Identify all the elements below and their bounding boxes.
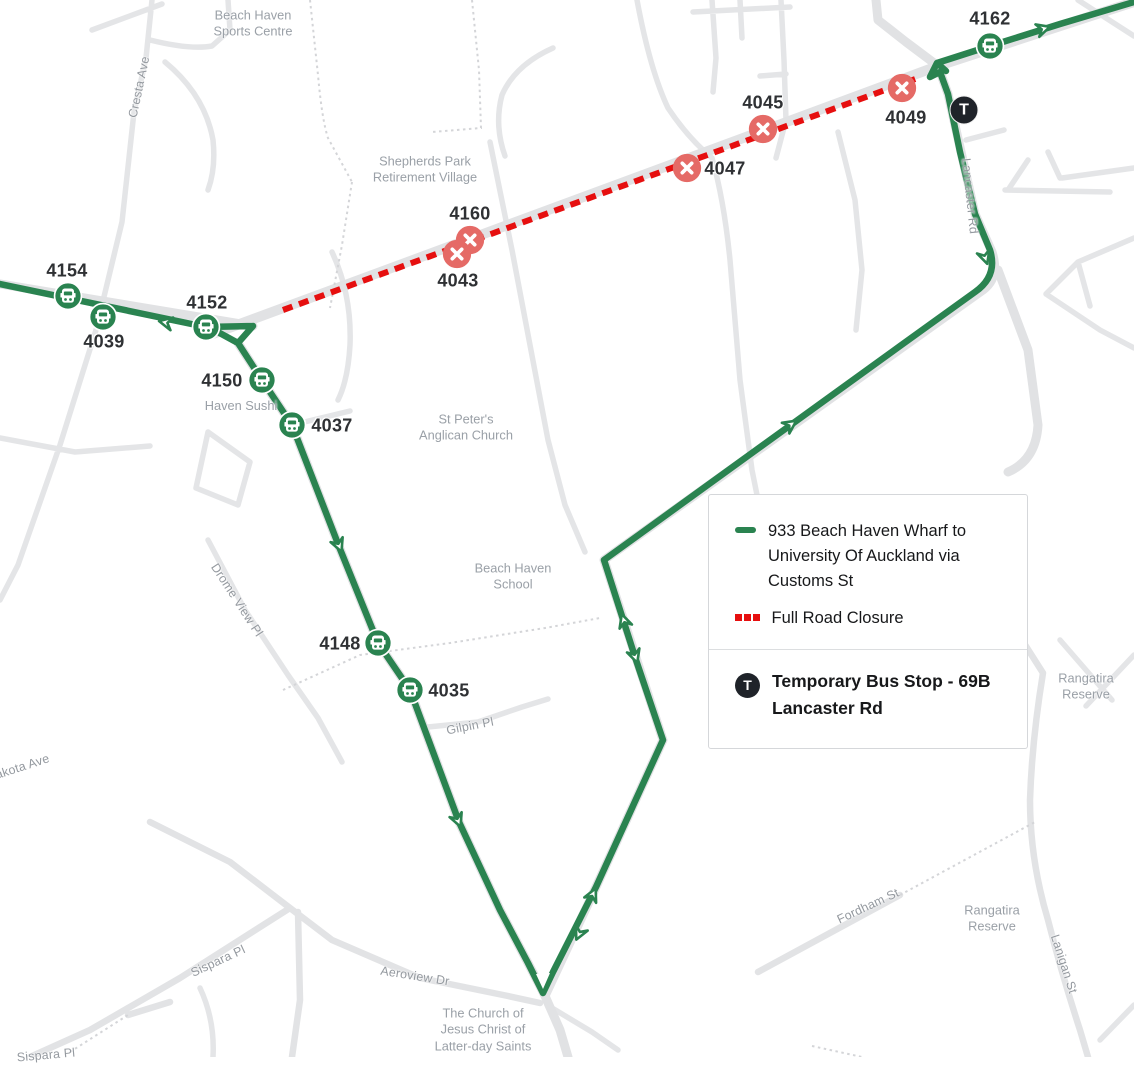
stop-label-4045: 4045 xyxy=(742,93,783,114)
closed-stop-marker-4045[interactable] xyxy=(748,114,778,144)
place-label-beach-haven-school: Beach Haven School xyxy=(475,561,552,594)
stop-label-4049: 4049 xyxy=(885,108,926,129)
place-label-haven-sushi: Haven Sushi xyxy=(205,398,278,414)
closed-stop-x-icon xyxy=(748,114,778,144)
bus-stop-marker-4037[interactable] xyxy=(278,411,307,440)
legend-closure-row: Full Road Closure xyxy=(735,606,1003,631)
legend-temporary-row: T Temporary Bus Stop - 69B Lancaster Rd xyxy=(735,668,1003,722)
closed-stop-x-icon xyxy=(672,153,702,183)
bus-icon xyxy=(248,366,277,395)
bus-icon xyxy=(364,629,393,658)
place-label-lds-church: The Church of Jesus Christ of Latter-day… xyxy=(435,1005,532,1054)
stop-label-4043: 4043 xyxy=(437,271,478,292)
bus-stop-marker-4154[interactable] xyxy=(54,282,83,311)
bus-stop-marker-4039[interactable] xyxy=(89,303,118,332)
place-label-shepherds-park: Shepherds Park Retirement Village xyxy=(373,154,477,187)
route-direction-arrows xyxy=(158,21,1052,943)
legend: 933 Beach Haven Wharf to University Of A… xyxy=(708,494,1028,749)
stop-label-4150: 4150 xyxy=(201,371,242,392)
bus-icon xyxy=(192,313,221,342)
closed-stop-marker-4047[interactable] xyxy=(672,153,702,183)
bus-icon xyxy=(976,32,1005,61)
bus-stop-marker-4150[interactable] xyxy=(248,366,277,395)
closed-stop-x-icon xyxy=(887,73,917,103)
legend-divider xyxy=(709,649,1027,650)
bus-stop-marker-4035[interactable] xyxy=(396,676,425,705)
closed-stop-marker-4043[interactable] xyxy=(442,239,472,269)
place-label-rangatira-reserve-south: Rangatira Reserve xyxy=(964,903,1020,936)
route-line-swatch xyxy=(735,527,756,533)
stop-label-4047: 4047 xyxy=(704,159,745,180)
bus-icon xyxy=(278,411,307,440)
place-label-st-peters-church: St Peter's Anglican Church xyxy=(419,412,513,445)
legend-closure-label: Full Road Closure xyxy=(772,606,988,631)
closed-stop-x-icon xyxy=(442,239,472,269)
legend-route-row: 933 Beach Haven Wharf to University Of A… xyxy=(735,519,1003,593)
temporary-stop-icon: T xyxy=(735,673,760,698)
stop-label-4152: 4152 xyxy=(186,293,227,314)
legend-temporary-label: Temporary Bus Stop - 69B Lancaster Rd xyxy=(772,668,1003,722)
stop-label-4037: 4037 xyxy=(311,416,352,437)
closure-dashed-swatch xyxy=(735,614,760,621)
bus-stop-marker-4162[interactable] xyxy=(976,32,1005,61)
bus-icon xyxy=(89,303,118,332)
bus-icon xyxy=(54,282,83,311)
temporary-stop-marker[interactable]: T xyxy=(950,96,979,125)
stop-label-4160: 4160 xyxy=(449,204,490,225)
stop-label-4154: 4154 xyxy=(46,261,87,282)
stop-label-4039: 4039 xyxy=(83,332,124,353)
place-label-rangatira-reserve-north: Rangatira Reserve xyxy=(1058,671,1114,704)
bus-icon xyxy=(396,676,425,705)
place-label-beach-haven-sports-centre: Beach Haven Sports Centre xyxy=(214,8,293,41)
closed-stop-marker-4049[interactable] xyxy=(887,73,917,103)
stop-label-4148: 4148 xyxy=(319,634,360,655)
bus-stop-marker-4148[interactable] xyxy=(364,629,393,658)
bus-stop-marker-4152[interactable] xyxy=(192,313,221,342)
stop-label-4035: 4035 xyxy=(428,681,469,702)
stop-label-4162: 4162 xyxy=(969,9,1010,30)
legend-route-label: 933 Beach Haven Wharf to University Of A… xyxy=(768,519,984,593)
